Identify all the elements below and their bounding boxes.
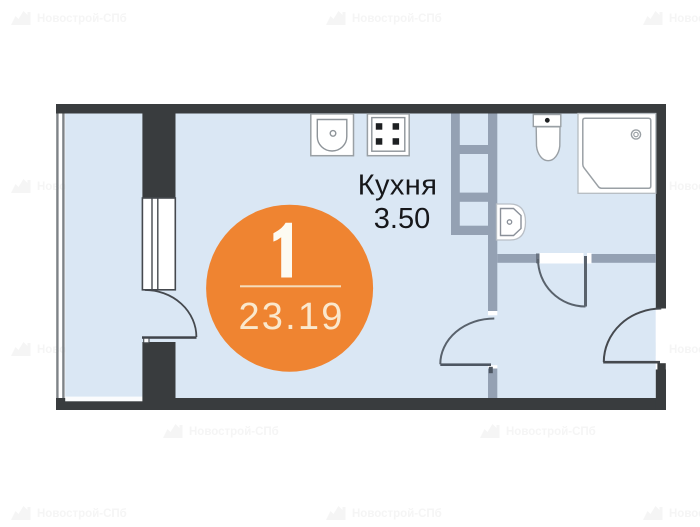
svg-text:Новострой-СПб: Новострой-СПб — [506, 426, 596, 438]
svg-text:Новострой-СПб: Новострой-СПб — [352, 13, 442, 25]
svg-text:Новострой-СПб: Новострой-СПб — [669, 508, 700, 520]
svg-text:Новострой-СПб: Новострой-СПб — [669, 181, 700, 193]
svg-text:Новострой-СПб: Новострой-СПб — [669, 13, 700, 25]
svg-text:Новострой-СПб: Новострой-СПб — [189, 426, 279, 438]
svg-text:Новострой-СПб: Новострой-СПб — [37, 508, 127, 520]
svg-text:Кухня: Кухня — [358, 170, 438, 202]
svg-text:Новострой-СПб: Новострой-СПб — [352, 508, 442, 520]
svg-text:Новострой-СПб: Новострой-СПб — [669, 344, 700, 356]
svg-text:23.19: 23.19 — [238, 296, 344, 338]
svg-text:Новострой-СПб: Новострой-СПб — [37, 13, 127, 25]
svg-text:3.50: 3.50 — [374, 203, 430, 235]
